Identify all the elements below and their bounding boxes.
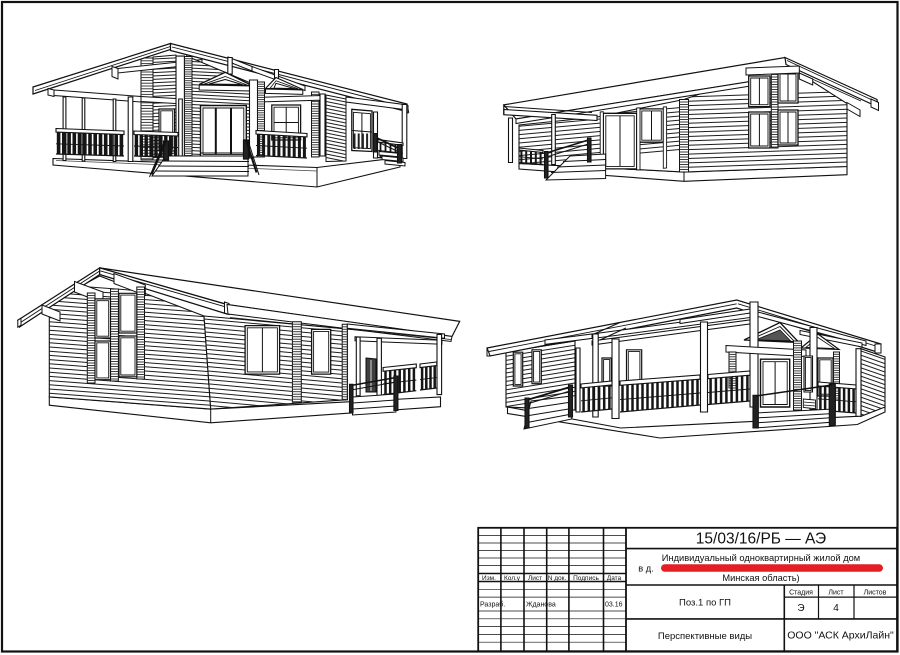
svg-text:Перспективные виды: Перспективные виды — [658, 631, 752, 642]
svg-text:ООО "АСК АрхиЛайн": ООО "АСК АрхиЛайн" — [787, 630, 894, 642]
svg-text:Кол.у: Кол.у — [504, 575, 521, 582]
svg-text:Разраб.: Разраб. — [480, 601, 505, 609]
svg-text:4: 4 — [833, 603, 839, 614]
svg-text:N док.: N док. — [548, 575, 567, 582]
svg-text:Лист: Лист — [528, 575, 542, 582]
svg-text:Минская область): Минская область) — [722, 573, 799, 583]
svg-text:в д.: в д. — [638, 564, 654, 574]
svg-text:Э: Э — [797, 603, 804, 614]
svg-text:Стадия: Стадия — [789, 589, 813, 596]
svg-text:15/03/16/РБ — АЭ: 15/03/16/РБ — АЭ — [696, 531, 826, 548]
svg-text:03.16: 03.16 — [605, 602, 623, 609]
svg-text:Поз.1 по ГП: Поз.1 по ГП — [679, 598, 731, 609]
svg-text:Листов: Листов — [864, 589, 887, 596]
svg-text:Индивидуальный одноквартирный: Индивидуальный одноквартирный жилой дом — [662, 553, 860, 563]
svg-text:Изм.: Изм. — [482, 575, 496, 582]
svg-text:Подпись: Подпись — [573, 575, 599, 582]
svg-text:Дата: Дата — [607, 575, 622, 582]
svg-text:Жданова: Жданова — [526, 602, 556, 609]
svg-text:Лист: Лист — [828, 589, 844, 596]
